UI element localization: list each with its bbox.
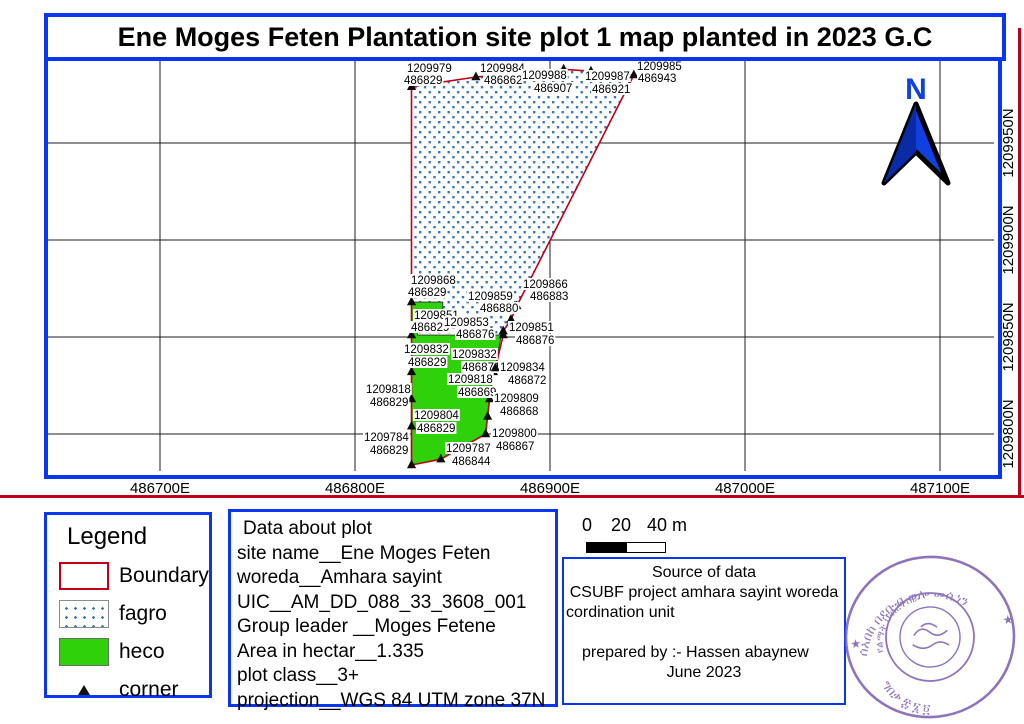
scale-tick: 20 — [611, 515, 631, 536]
stamp-center-ring — [897, 604, 963, 670]
heco-swatch — [59, 638, 109, 666]
data-line: projection__WGS 84 UTM zone 37N — [237, 689, 555, 714]
page-title: Ene Moges Feten Plantation site plot 1 m… — [118, 22, 933, 53]
source-line: cordination unit — [564, 603, 844, 623]
data-line: Group leader __Moges Fetene — [237, 615, 555, 640]
source-date: June 2023 — [564, 663, 844, 683]
legend-item-fagro: fagro — [59, 599, 209, 629]
legend-title: Legend — [67, 523, 209, 551]
scale-bar — [586, 542, 666, 553]
source-line: CSUBF project amhara sayint woreda — [564, 583, 844, 603]
legend-item-corner: corner — [59, 675, 209, 705]
stamp-inner-ring — [882, 589, 979, 686]
data-line: Area in hectar__1.335 — [237, 640, 555, 665]
scale-segment-empty — [626, 542, 666, 553]
northing-axis-label: 1209950N — [1000, 108, 1017, 177]
stamp-arc-text-mid: የልማት ህብረትስራ — [869, 592, 926, 654]
easting-axis-label: 486900E — [520, 480, 580, 497]
easting-axis-label: 487100E — [910, 480, 970, 497]
source-title: Source of data — [564, 563, 844, 583]
source-box: Source of data CSUBF project amhara sayi… — [562, 557, 846, 705]
legend-box: Legend Boundary fagro heco corner — [44, 512, 212, 698]
data-line: woreda__Amhara sayint — [237, 566, 555, 591]
map-title-box: Ene Moges Feten Plantation site plot 1 m… — [44, 13, 1006, 61]
scale-bar-labels: 0 20 40 m — [578, 515, 718, 535]
scale-tick: 40 m — [647, 515, 687, 536]
legend-label: corner — [119, 678, 179, 702]
stamp-star-icon: ★ — [1002, 612, 1014, 627]
official-stamp: ሰአበከ በደቡብ ወሎ መሲነንየልማት ህብረትስራግበቃ ፰ ፮ ፬★★ — [838, 550, 1022, 724]
fagro-swatch — [59, 600, 109, 628]
data-line: plot class__3+ — [237, 664, 555, 689]
legend-label: heco — [119, 640, 165, 664]
data-line: Data about plot — [237, 517, 555, 542]
stamp-outer-ring — [838, 550, 1022, 724]
corner-triangle-icon — [78, 685, 90, 695]
easting-axis-label: 487000E — [715, 480, 775, 497]
corner-swatch — [59, 676, 109, 704]
northing-axis-label: 1209800N — [1000, 399, 1017, 468]
map-frame — [44, 57, 1002, 479]
plot-data-box: Data about plot site name__Ene Moges Fet… — [228, 509, 558, 707]
data-line: site name__Ene Moges Feten — [237, 542, 555, 567]
scale-segment-filled — [586, 542, 626, 553]
boundary-swatch — [59, 562, 109, 590]
easting-axis-label: 486800E — [325, 480, 385, 497]
legend-label: Boundary — [119, 564, 209, 588]
legend-item-boundary: Boundary — [59, 561, 209, 591]
easting-axis-label: 486700E — [130, 480, 190, 497]
scale-tick: 0 — [582, 515, 592, 536]
northing-axis-label: 1209850N — [1000, 302, 1017, 371]
stamp-arc-text-bottom: ግበቃ ፰ ፮ ፬ — [878, 674, 932, 722]
northing-axis-label: 1209900N — [1000, 205, 1017, 274]
legend-label: fagro — [119, 602, 167, 626]
stamp-arc-text-top: ሰአበከ በደቡብ ወሎ መሲነን — [849, 581, 977, 658]
stamp-star-icon: ★ — [850, 636, 862, 651]
legend-item-heco: heco — [59, 637, 209, 667]
source-prepared-by: prepared by :- Hassen abaynew — [564, 643, 844, 663]
stamp-emblem — [911, 622, 949, 650]
data-line: UIC__AM_DD_088_33_3608_001 — [237, 591, 555, 616]
stamp-group: ሰአበከ በደቡብ ወሎ መሲነንየልማት ህብረትስራግበቃ ፰ ፮ ፬★★ — [838, 550, 1022, 724]
